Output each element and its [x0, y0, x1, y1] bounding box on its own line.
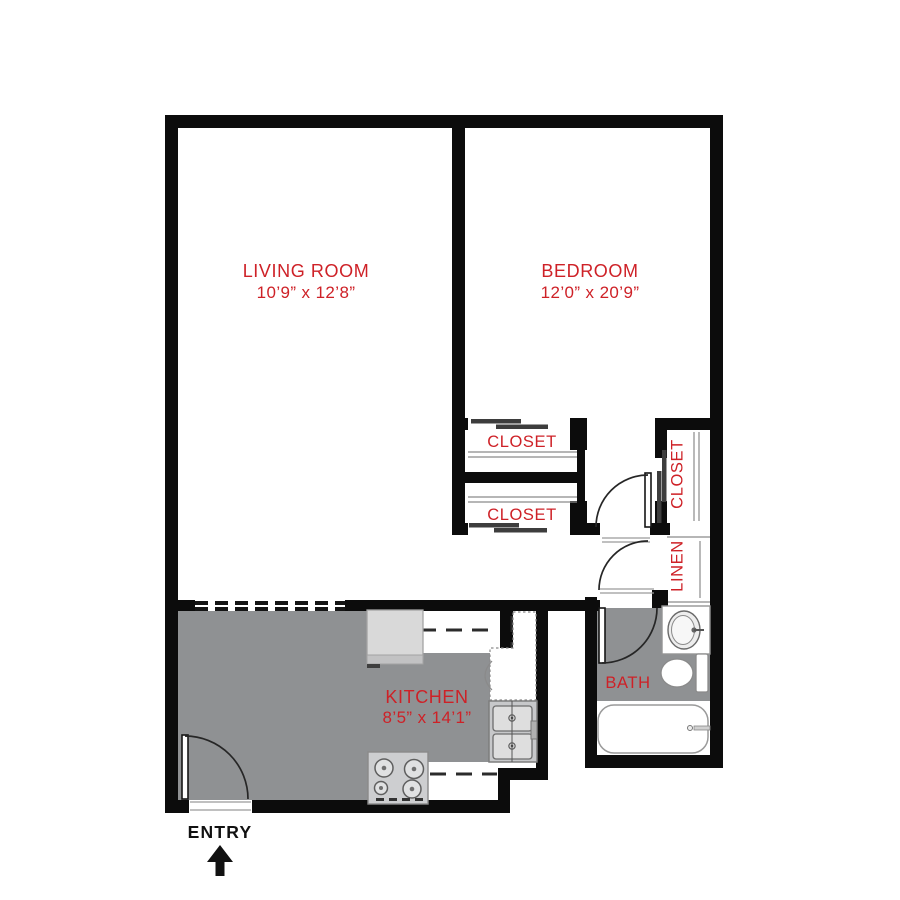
stove-control [376, 798, 384, 801]
hall-door-upper [596, 473, 651, 542]
wall-kitchen-top [345, 600, 600, 611]
refrigerator-base [367, 655, 423, 664]
wall-top [165, 115, 723, 128]
refrigerator [367, 610, 423, 668]
door-swing-arc [596, 475, 648, 527]
bedroom-label: BEDROOM [541, 261, 638, 281]
burner-center [412, 767, 417, 772]
toilet-tank [696, 654, 708, 692]
bedroom-closet-sliding-door [662, 450, 667, 502]
entry-arrow-icon [207, 845, 233, 876]
door-leaf [599, 608, 605, 663]
closet-bottom-label: CLOSET [487, 506, 557, 524]
burner-center [410, 787, 415, 792]
kitchen-dims: 8’5” x 14’1” [383, 708, 472, 727]
stove [368, 752, 428, 804]
entry-label: ENTRY [188, 822, 253, 842]
bathtub-faucet [688, 726, 693, 731]
wall-left [165, 115, 178, 813]
bathtub-spout [694, 726, 710, 730]
door-leaf [645, 473, 651, 527]
stove-control [402, 798, 410, 801]
kitchen-sink-handle [531, 721, 537, 739]
kitchen-counter [490, 612, 536, 700]
closet-top-label: CLOSET [487, 433, 557, 451]
bathroom-sink-inner [672, 616, 695, 645]
floor-plan-page: LIVING ROOM 10’9” x 12’8” BEDROOM 12’0” … [0, 0, 900, 900]
hall-door-lower [599, 541, 654, 593]
living-room-dims: 10’9” x 12’8” [257, 283, 356, 302]
wall-bath-west [585, 597, 597, 768]
kitchen-sink [489, 701, 537, 762]
stove-control [415, 798, 423, 801]
wall-kitchen-east [536, 600, 548, 780]
burner-center [382, 766, 387, 771]
door-swing-arc [599, 541, 648, 590]
bedroom-dims: 12’0” x 20’9” [541, 283, 640, 302]
wall-closet-linen-block [650, 523, 670, 535]
vanity-sink [662, 606, 710, 654]
wall-closet-top-stub [452, 418, 468, 430]
closet-top-sliding-door2 [496, 425, 548, 430]
refrigerator-handle [367, 664, 380, 668]
stove-body [368, 752, 428, 804]
kitchen-label: KITCHEN [385, 687, 468, 707]
burner-center [379, 786, 383, 790]
wall-hall-bath-stub [652, 590, 668, 608]
wall-kitchen-top-stub [165, 600, 195, 611]
toilet-bowl [661, 659, 693, 687]
refrigerator-body [367, 610, 423, 659]
wall-closet-bottom-stub [452, 523, 468, 535]
wall-closet-mid [452, 472, 583, 483]
bedroom-closet-label: CLOSET [668, 439, 686, 509]
living-room-label: LIVING ROOM [243, 261, 370, 281]
bedroom-closet-sliding-door2 [657, 471, 662, 523]
wall-closet-right-block-top [570, 418, 587, 450]
linen-label: LINEN [668, 540, 686, 592]
stove-control [389, 798, 397, 801]
floor-plan-drawing: LIVING ROOM 10’9” x 12’8” BEDROOM 12’0” … [0, 0, 900, 900]
wall-bath-bottom [585, 755, 723, 768]
closet-top-sliding-door [471, 419, 521, 424]
door-leaf [182, 735, 188, 799]
wall-right [710, 115, 723, 768]
bathtub [598, 705, 710, 753]
wall-bottom-left [165, 800, 189, 813]
bath-label: BATH [605, 674, 650, 692]
closet-bottom-sliding-door2 [494, 528, 547, 533]
